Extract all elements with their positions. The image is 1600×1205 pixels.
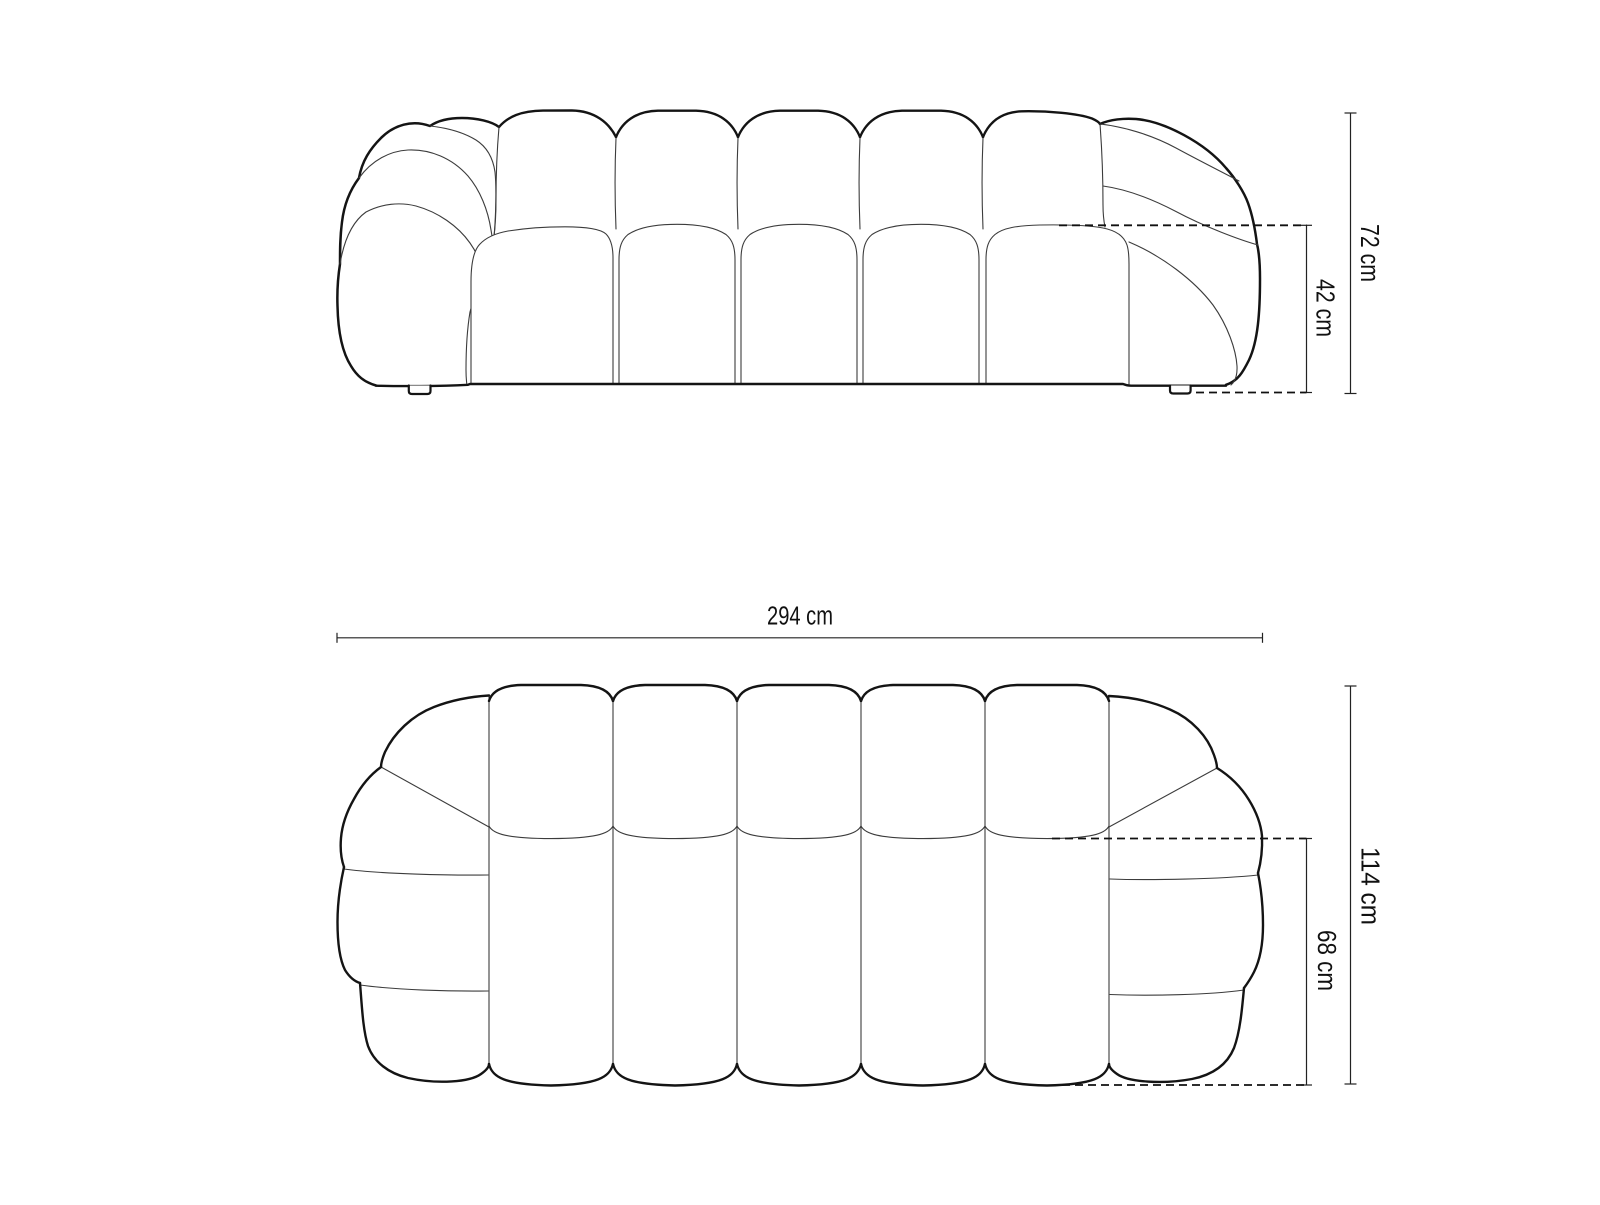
svg-text:42 cm: 42 cm [1311,279,1339,337]
svg-text:114 cm: 114 cm [1356,847,1384,925]
svg-text:72 cm: 72 cm [1355,224,1383,282]
svg-text:294 cm: 294 cm [767,603,833,631]
svg-text:68 cm: 68 cm [1312,930,1340,991]
